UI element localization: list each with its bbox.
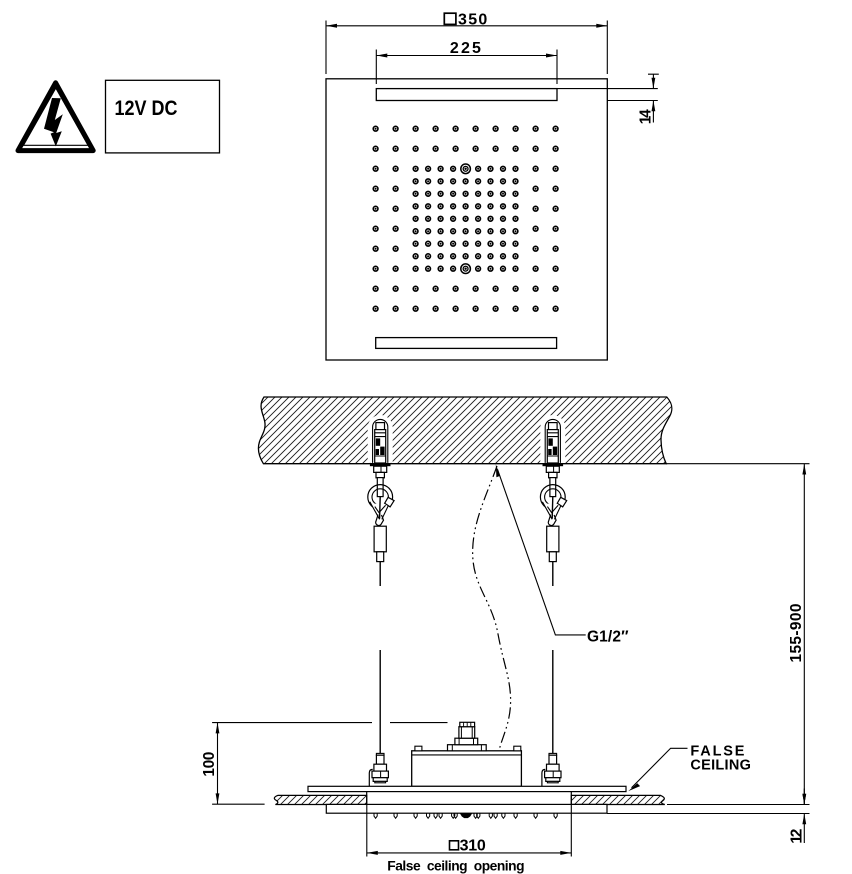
svg-text:225: 225 <box>450 40 481 57</box>
svg-text:350: 350 <box>458 11 487 28</box>
svg-text:CEILING: CEILING <box>690 758 751 774</box>
svg-text:14: 14 <box>638 109 655 124</box>
svg-text:155-900: 155-900 <box>788 604 805 663</box>
svg-text:12V DC: 12V DC <box>115 97 178 120</box>
svg-text:False ceiling opening: False ceiling opening <box>387 858 524 873</box>
svg-text:12: 12 <box>788 829 805 844</box>
svg-text:310: 310 <box>460 838 486 855</box>
svg-text:G1/2″: G1/2″ <box>587 628 629 645</box>
svg-text:100: 100 <box>201 752 218 777</box>
